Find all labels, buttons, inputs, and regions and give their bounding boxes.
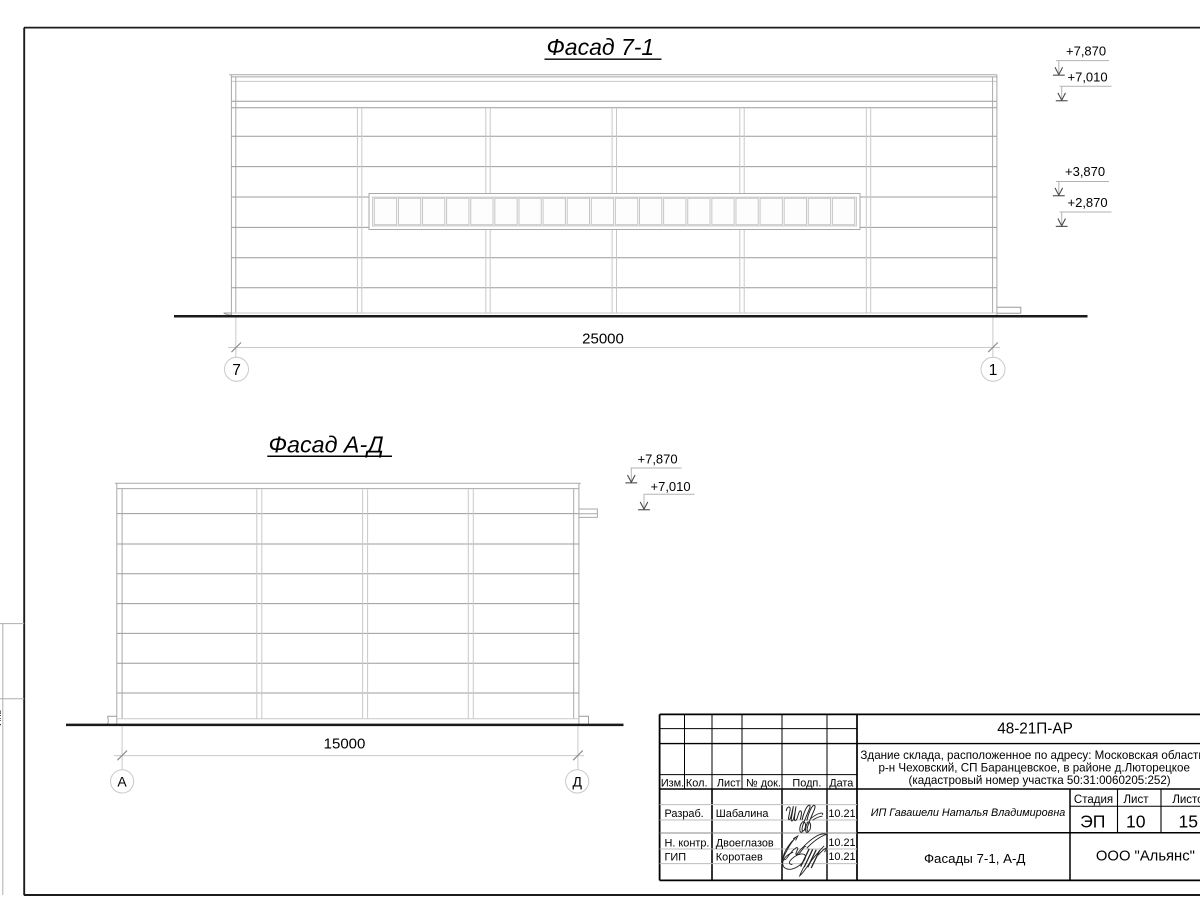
svg-text:Здание склада, расположенное п: Здание склада, расположенное по адресу: … [860,749,1200,762]
svg-text:+2,870: +2,870 [1068,195,1108,210]
svg-text:Подп.: Подп. [792,777,821,789]
svg-text:Фасад А-Д: Фасад А-Д [269,431,384,457]
svg-text:25000: 25000 [582,331,624,348]
svg-text:Фасад 7-1: Фасад 7-1 [547,34,655,60]
svg-text:+7,010: +7,010 [651,479,691,494]
svg-text:ГИП: ГИП [665,851,687,863]
svg-text:ООО "Альянс": ООО "Альянс" [1096,849,1195,865]
svg-text:15000: 15000 [324,735,366,752]
svg-text:Разраб.: Разраб. [665,808,704,820]
svg-text:Лист: Лист [717,777,741,789]
svg-text:Инв: Инв [0,710,3,726]
svg-text:ЭП: ЭП [1080,812,1105,832]
svg-text:15: 15 [1179,812,1199,832]
svg-text:Шабалина: Шабалина [716,808,770,820]
svg-text:Лист: Лист [1124,794,1150,806]
svg-text:А: А [117,774,127,790]
svg-text:№ док.: № док. [746,777,781,789]
svg-text:Двоеглазов: Двоеглазов [716,837,774,849]
svg-text:Листов: Листов [1172,794,1200,806]
svg-text:Коротаев: Коротаев [716,851,763,863]
svg-text:+7,010: +7,010 [1068,70,1108,85]
svg-text:10.21: 10.21 [828,851,855,863]
svg-text:10: 10 [1126,812,1146,832]
svg-text:р-н Чеховский, СП Баранцевское: р-н Чеховский, СП Баранцевское, в районе… [878,762,1189,775]
svg-text:Кол.: Кол. [686,777,708,789]
svg-text:+7,870: +7,870 [638,451,678,466]
svg-text:+3,870: +3,870 [1065,164,1105,179]
svg-text:48-21П-АР: 48-21П-АР [997,720,1073,737]
svg-text:1: 1 [989,362,998,379]
svg-text:Н. контр.: Н. контр. [665,837,710,849]
svg-text:Стадия: Стадия [1074,794,1113,806]
svg-text:Фасады 7-1, А-Д: Фасады 7-1, А-Д [924,851,1025,866]
svg-text:Д: Д [572,774,582,790]
svg-text:ИП Гавашели Наталья Владимиров: ИП Гавашели Наталья Владимировна [871,807,1066,819]
svg-text:Изм.: Изм. [661,777,684,789]
svg-text:+7,870: +7,870 [1066,43,1106,58]
svg-text:(кадастровый номер участка 50:: (кадастровый номер участка 50:31:0060205… [909,774,1171,787]
svg-text:10.21: 10.21 [828,808,855,820]
svg-text:10.21: 10.21 [828,837,855,849]
svg-text:7: 7 [232,362,241,379]
svg-text:Дата: Дата [829,777,854,789]
